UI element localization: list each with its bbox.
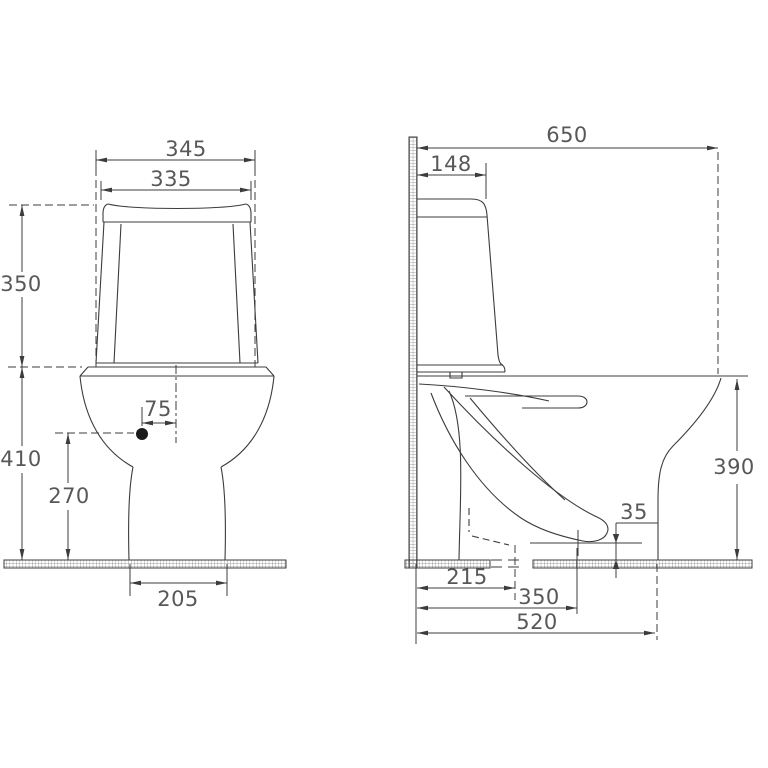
tank-side-outline [417,199,505,378]
outlet-center-mark [530,530,642,556]
wall-hatch [409,137,417,568]
dim-wall-to-front-foot: 520 [516,610,558,634]
technical-drawing: 345 335 350 410 270 75 205 [0,0,768,768]
front-dimension-lines [22,160,255,583]
floor-hatch-side-right [533,560,752,568]
bowl-front-profile [658,378,721,560]
dim-hole-height: 270 [48,484,90,508]
dim-wall-to-outlet-center: 350 [518,585,560,609]
dim-total-depth: 650 [546,123,588,147]
side-view: 650 148 390 35 215 350 520 [405,123,755,644]
dim-base-width: 205 [157,587,199,611]
tank-front-outline [96,204,258,363]
bowl-side-internals [419,384,608,560]
fixing-hole-dot [136,428,148,440]
bowl-front-outline [80,376,274,560]
dim-tank-top-depth: 148 [430,152,472,176]
dim-lid-width: 335 [150,167,192,191]
dim-hole-offset: 75 [144,397,172,421]
front-extension-lines [8,150,255,596]
floor-hatch-front [4,560,286,568]
seat-band-front [80,367,274,376]
dim-tank-bottom-width: 345 [165,137,207,161]
dim-outlet-to-floor: 35 [620,500,648,524]
dim-tank-height: 350 [0,272,42,296]
drawing-canvas: 345 335 350 410 270 75 205 [0,0,768,768]
front-view: 345 335 350 410 270 75 205 [0,137,286,611]
dim-bowl-height: 410 [0,447,42,471]
dim-wall-to-drain: 215 [446,565,488,589]
dim-rim-height: 390 [713,455,755,479]
